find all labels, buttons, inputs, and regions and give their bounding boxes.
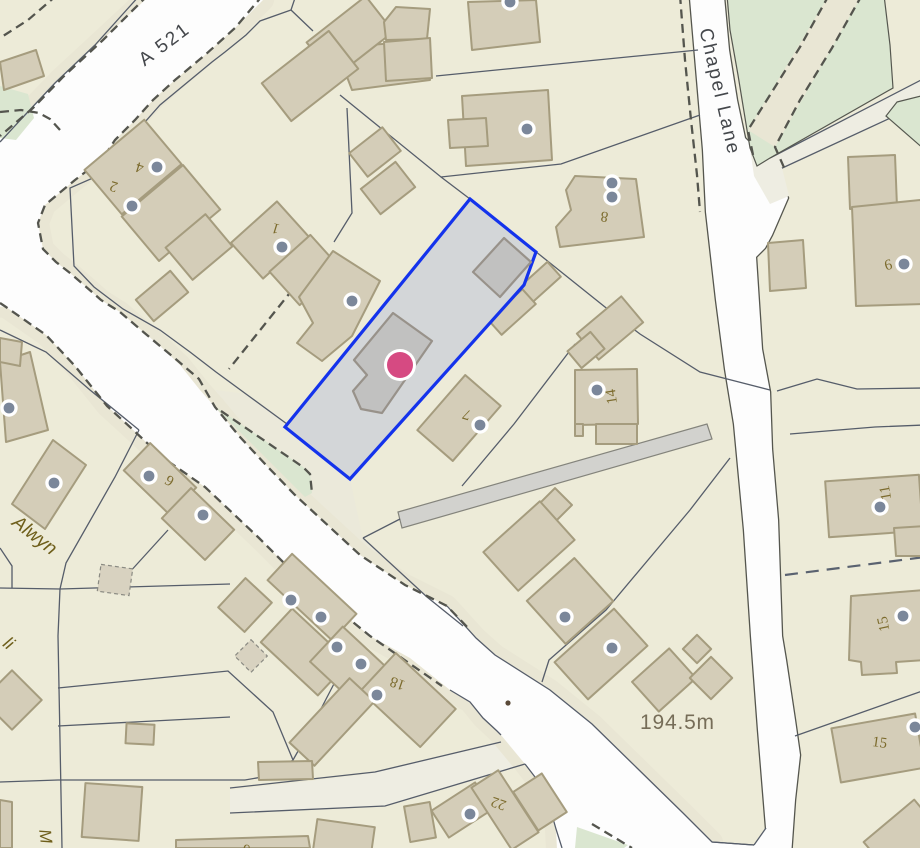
svg-text:14: 14 bbox=[603, 387, 621, 405]
svg-text:194.5m: 194.5m bbox=[640, 711, 715, 734]
svg-text:11: 11 bbox=[877, 484, 895, 501]
svg-text:15: 15 bbox=[871, 734, 888, 752]
